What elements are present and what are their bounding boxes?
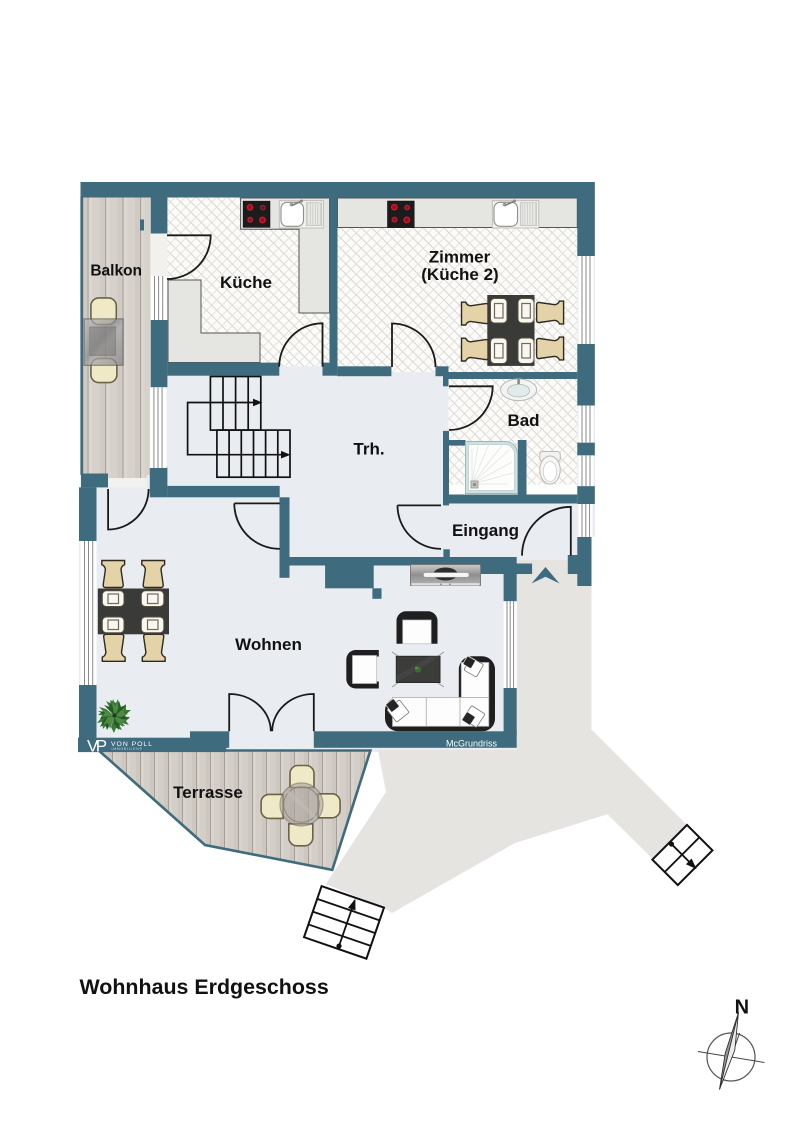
svg-text:(Küche 2): (Küche 2) <box>421 265 498 284</box>
svg-text:Terrasse: Terrasse <box>173 783 243 802</box>
svg-text:Eingang: Eingang <box>452 521 519 540</box>
svg-text:Bad: Bad <box>507 411 539 430</box>
svg-text:P: P <box>96 736 107 755</box>
svg-text:N: N <box>735 996 749 1018</box>
svg-text:IMMOBILIEN®: IMMOBILIEN® <box>112 747 143 751</box>
svg-text:Balkon: Balkon <box>90 263 142 280</box>
svg-text:McGrundriss: McGrundriss <box>446 739 498 749</box>
svg-text:Zimmer: Zimmer <box>429 248 491 267</box>
svg-text:Wohnhaus Erdgeschoss: Wohnhaus Erdgeschoss <box>80 975 329 999</box>
svg-text:Wohnen: Wohnen <box>235 635 302 654</box>
svg-text:Küche: Küche <box>220 273 272 292</box>
svg-text:Trh.: Trh. <box>353 440 384 459</box>
